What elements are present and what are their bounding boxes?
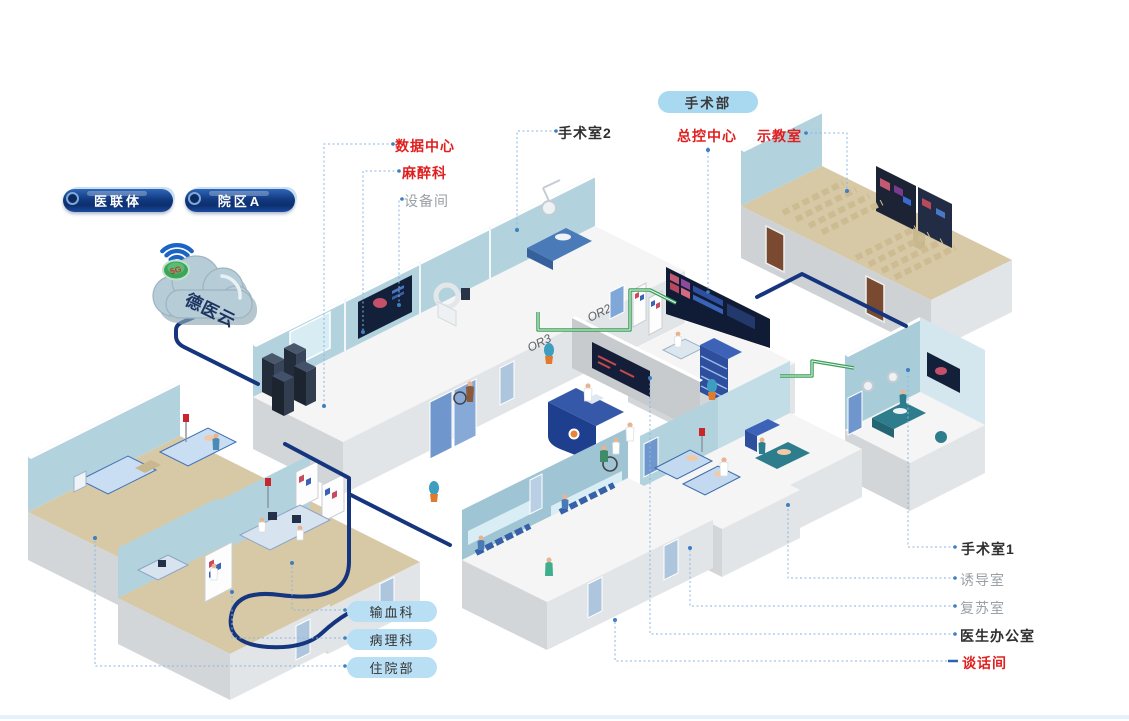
or1-curtain <box>848 391 862 435</box>
cloud-platform: 德医云 5G <box>153 245 257 331</box>
callout-demo-classroom: 示教室 <box>757 126 802 146</box>
room-demo-classroom <box>741 110 1012 352</box>
door <box>588 577 602 618</box>
callout-talk-room: 谈话间 <box>962 653 1007 673</box>
iv-blood-bag <box>265 478 271 486</box>
pill-pathology: 病理科 <box>347 629 437 650</box>
pill-label: 医联体 <box>94 191 142 210</box>
door <box>530 474 542 514</box>
callout-operating-room-2: 手术室2 <box>558 123 612 143</box>
bottom-divider <box>0 715 1129 719</box>
classroom-door <box>766 226 784 272</box>
callout-data-center: 数据中心 <box>395 136 455 156</box>
callout-recovery-room: 复苏室 <box>960 598 1005 618</box>
callout-induction-room: 诱导室 <box>960 570 1005 590</box>
department-pill-surgery: 手术部 <box>658 91 758 113</box>
iv-blood-bag <box>699 428 705 436</box>
door <box>664 539 678 580</box>
callout-master-control: 总控中心 <box>677 126 737 146</box>
surgical-lamp <box>888 372 898 382</box>
pill-medical-consortium: 医联体 <box>63 189 173 212</box>
pill-blood-transfusion: 输血科 <box>347 601 437 622</box>
callout-operating-room-1: 手术室1 <box>961 539 1015 559</box>
callout-doctor-office: 医生办公室 <box>960 626 1035 646</box>
callout-equipment-room: 设备间 <box>404 191 449 211</box>
pill-campus-a: 院区A <box>185 189 295 212</box>
iv-blood-bag <box>183 414 189 422</box>
recovery-curtain <box>644 437 658 477</box>
stool <box>935 431 947 443</box>
surgical-lamp <box>542 201 556 215</box>
pill-label: 院区A <box>218 191 262 210</box>
callout-anesthesiology: 麻醉科 <box>402 163 447 183</box>
pill-inpatient-department: 住院部 <box>347 657 437 678</box>
room-operating-1 <box>845 317 985 511</box>
door <box>296 619 310 660</box>
hall-double-door <box>430 391 452 459</box>
door <box>500 361 514 405</box>
surgical-lamp <box>863 381 873 391</box>
hospital-network-diagram: OR3 OR2 <box>0 0 1129 721</box>
5g-badge: 5G <box>163 261 189 280</box>
